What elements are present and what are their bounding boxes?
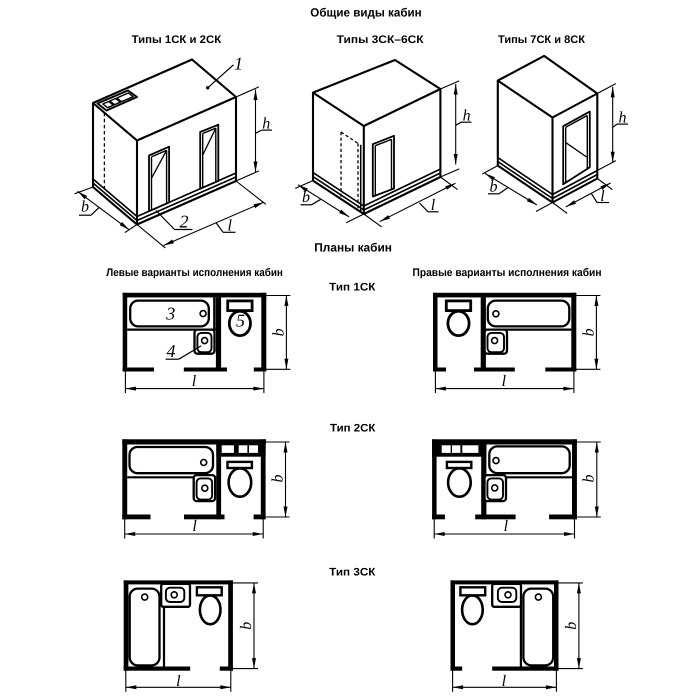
svg-text:Типы 3СК–6СК: Типы 3СК–6СК <box>337 34 424 46</box>
svg-text:Тип 1СК: Тип 1СК <box>329 282 376 294</box>
svg-text:Общие виды кабин: Общие виды кабин <box>310 6 421 20</box>
svg-text:Тип 3СК: Тип 3СК <box>329 567 376 579</box>
svg-text:b: b <box>581 475 598 483</box>
svg-text:l: l <box>192 518 197 535</box>
svg-text:l: l <box>502 373 507 390</box>
svg-text:3: 3 <box>165 304 175 324</box>
svg-text:Типы 1СК и 2СК: Типы 1СК и 2СК <box>132 34 222 46</box>
svg-text:b: b <box>270 328 287 336</box>
svg-text:1: 1 <box>234 54 243 74</box>
svg-text:l: l <box>504 518 509 535</box>
svg-text:b: b <box>238 622 255 630</box>
svg-text:b: b <box>302 189 310 206</box>
svg-text:2: 2 <box>180 212 189 232</box>
svg-text:b: b <box>563 622 580 630</box>
svg-text:b: b <box>269 475 286 483</box>
svg-text:Тип 2СК: Тип 2СК <box>330 423 376 435</box>
svg-text:l: l <box>502 673 507 690</box>
svg-text:5: 5 <box>236 310 245 330</box>
svg-text:l: l <box>192 373 197 390</box>
svg-text:b: b <box>490 179 498 196</box>
svg-text:4: 4 <box>167 341 176 361</box>
svg-text:Планы кабин: Планы кабин <box>314 241 392 255</box>
svg-text:l: l <box>176 673 181 690</box>
svg-text:Правые варианты исполнения каб: Правые варианты исполнения кабин <box>413 267 602 279</box>
svg-text:Левые варианты исполнения каби: Левые варианты исполнения кабин <box>106 267 283 279</box>
svg-text:b: b <box>81 199 89 216</box>
svg-text:Типы 7СК и 8СК: Типы 7СК и 8СК <box>498 34 585 46</box>
svg-text:b: b <box>580 328 597 336</box>
